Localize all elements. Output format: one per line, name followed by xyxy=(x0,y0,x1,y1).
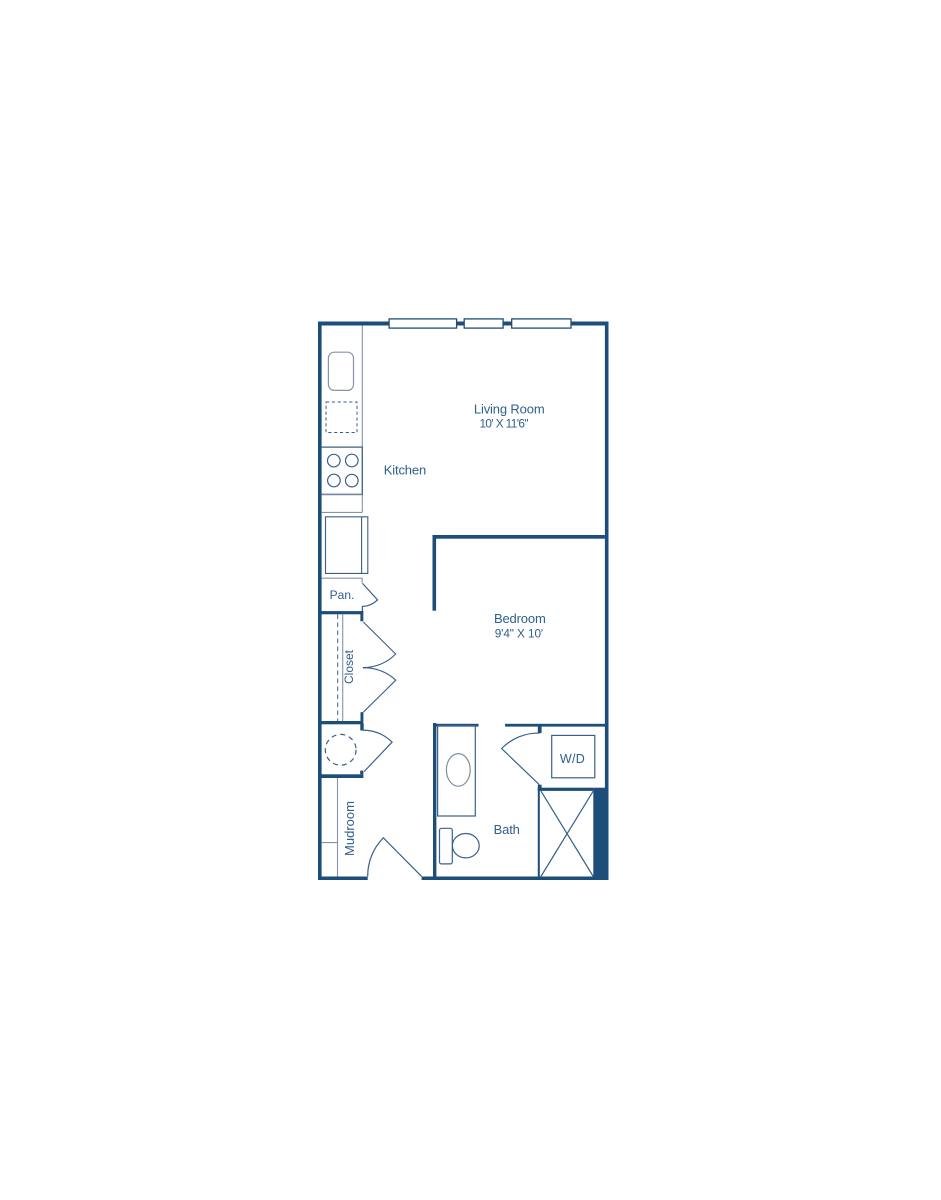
svg-text:W/D: W/D xyxy=(560,752,585,766)
svg-text:Closet: Closet xyxy=(342,649,356,684)
svg-text:9'4" X 10': 9'4" X 10' xyxy=(495,626,543,640)
svg-text:10' X 11'6": 10' X 11'6" xyxy=(479,417,528,431)
svg-text:Bedroom: Bedroom xyxy=(494,611,546,626)
svg-text:Mudroom: Mudroom xyxy=(342,801,357,856)
svg-text:Bath: Bath xyxy=(494,822,520,837)
svg-text:Living Room: Living Room xyxy=(474,401,545,416)
svg-text:Kitchen: Kitchen xyxy=(384,462,426,477)
svg-text:Pan.: Pan. xyxy=(330,588,355,602)
